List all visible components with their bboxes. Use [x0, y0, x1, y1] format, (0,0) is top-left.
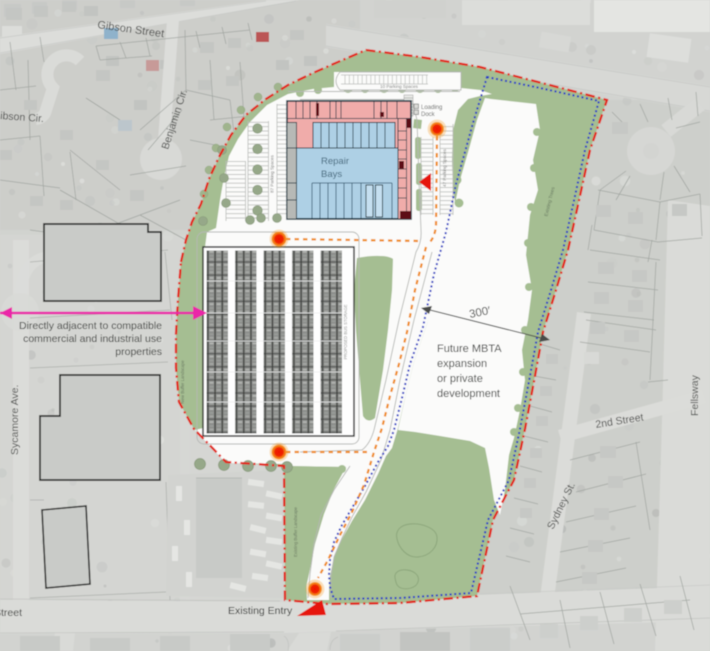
svg-text:or private: or private: [437, 373, 483, 385]
svg-text:properties: properties: [115, 346, 162, 358]
svg-text:PROPOSED BUS STORAGE: PROPOSED BUS STORAGE: [343, 304, 348, 359]
svg-text:Directly adjacent to compatibl: Directly adjacent to compatible: [19, 320, 162, 332]
svg-text:Street: Street: [0, 607, 22, 619]
svg-text:Repair: Repair: [321, 156, 349, 167]
svg-text:87 Parking Spaces: 87 Parking Spaces: [270, 154, 275, 193]
svg-text:Sycamore Ave.: Sycamore Ave.: [9, 385, 21, 455]
svg-text:Bays: Bays: [321, 169, 342, 180]
svg-text:commercial and industrial use: commercial and industrial use: [23, 333, 162, 345]
svg-text:Dock: Dock: [421, 112, 436, 118]
svg-text:10 Parking Spaces: 10 Parking Spaces: [380, 84, 419, 89]
svg-text:expansion: expansion: [437, 358, 487, 370]
svg-text:development: development: [437, 388, 500, 400]
svg-text:Existing Buffer Landscape: Existing Buffer Landscape: [293, 506, 298, 556]
svg-text:New Buffer Landscape: New Buffer Landscape: [180, 360, 185, 404]
svg-text:Fellsway: Fellsway: [689, 374, 701, 416]
svg-text:Existing Entry: Existing Entry: [228, 605, 293, 617]
svg-text:Future MBTA: Future MBTA: [437, 343, 502, 355]
svg-text:47 Parking Spaces: 47 Parking Spaces: [442, 148, 447, 187]
svg-text:Loading: Loading: [421, 105, 442, 111]
